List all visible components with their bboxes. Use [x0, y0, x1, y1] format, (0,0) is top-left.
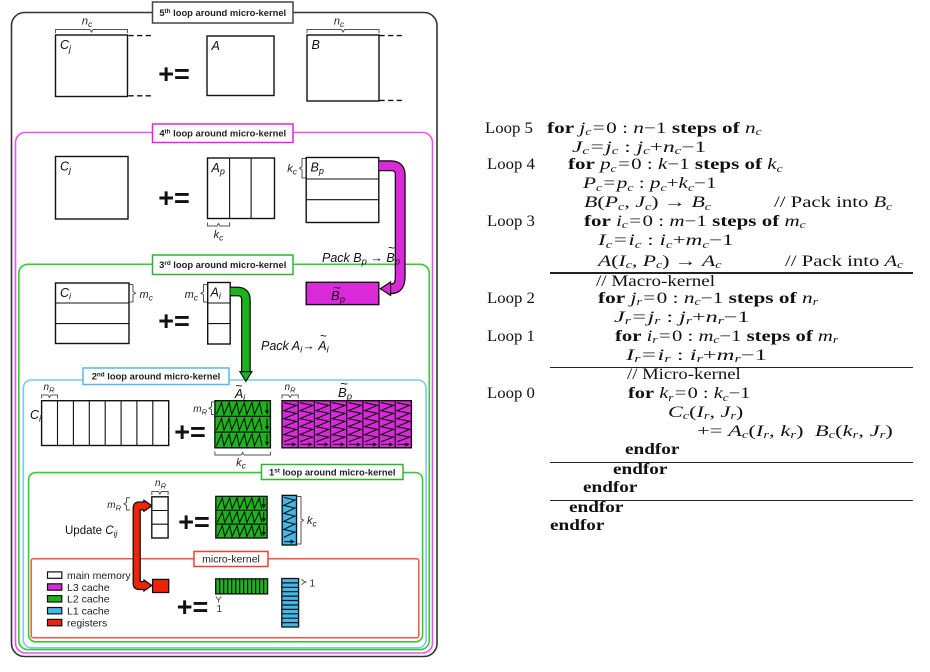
svg-text:+=: +=	[177, 592, 209, 622]
svg-text:2nd loop around micro-kernel: 2nd loop around micro-kernel	[92, 371, 221, 382]
svg-text:~: ~	[388, 241, 395, 255]
svg-text:+=: +=	[158, 183, 190, 213]
svg-text:+=: +=	[174, 417, 206, 447]
svg-text:1: 1	[310, 579, 316, 590]
svg-text:L3 cache: L3 cache	[67, 582, 110, 594]
svg-text:A: A	[211, 39, 220, 53]
svg-text:1st loop around micro-kernel: 1st loop around micro-kernel	[269, 466, 395, 477]
svg-text:L1 cache: L1 cache	[67, 606, 110, 618]
svg-text:+=: +=	[178, 507, 210, 537]
svg-text:~: ~	[333, 280, 341, 295]
svg-text:B: B	[312, 38, 320, 52]
svg-text:L2 cache: L2 cache	[67, 594, 110, 606]
svg-text:+=: +=	[158, 59, 190, 89]
svg-text:~: ~	[235, 379, 242, 393]
svg-text:registers: registers	[67, 617, 107, 629]
svg-text:+=: +=	[158, 306, 190, 336]
svg-text:5th loop around micro-kernel: 5th loop around micro-kernel	[159, 7, 286, 18]
svg-text:~: ~	[320, 329, 327, 343]
svg-text:main memory: main memory	[67, 570, 131, 582]
svg-text:3rd loop around micro-kernel: 3rd loop around micro-kernel	[159, 259, 286, 270]
svg-text:4th loop around micro-kernel: 4th loop around micro-kernel	[159, 128, 286, 139]
svg-text:micro-kernel: micro-kernel	[202, 553, 260, 565]
svg-text:Update Cij: Update Cij	[65, 525, 118, 538]
svg-text:1: 1	[217, 604, 223, 615]
svg-text:~: ~	[340, 376, 348, 391]
